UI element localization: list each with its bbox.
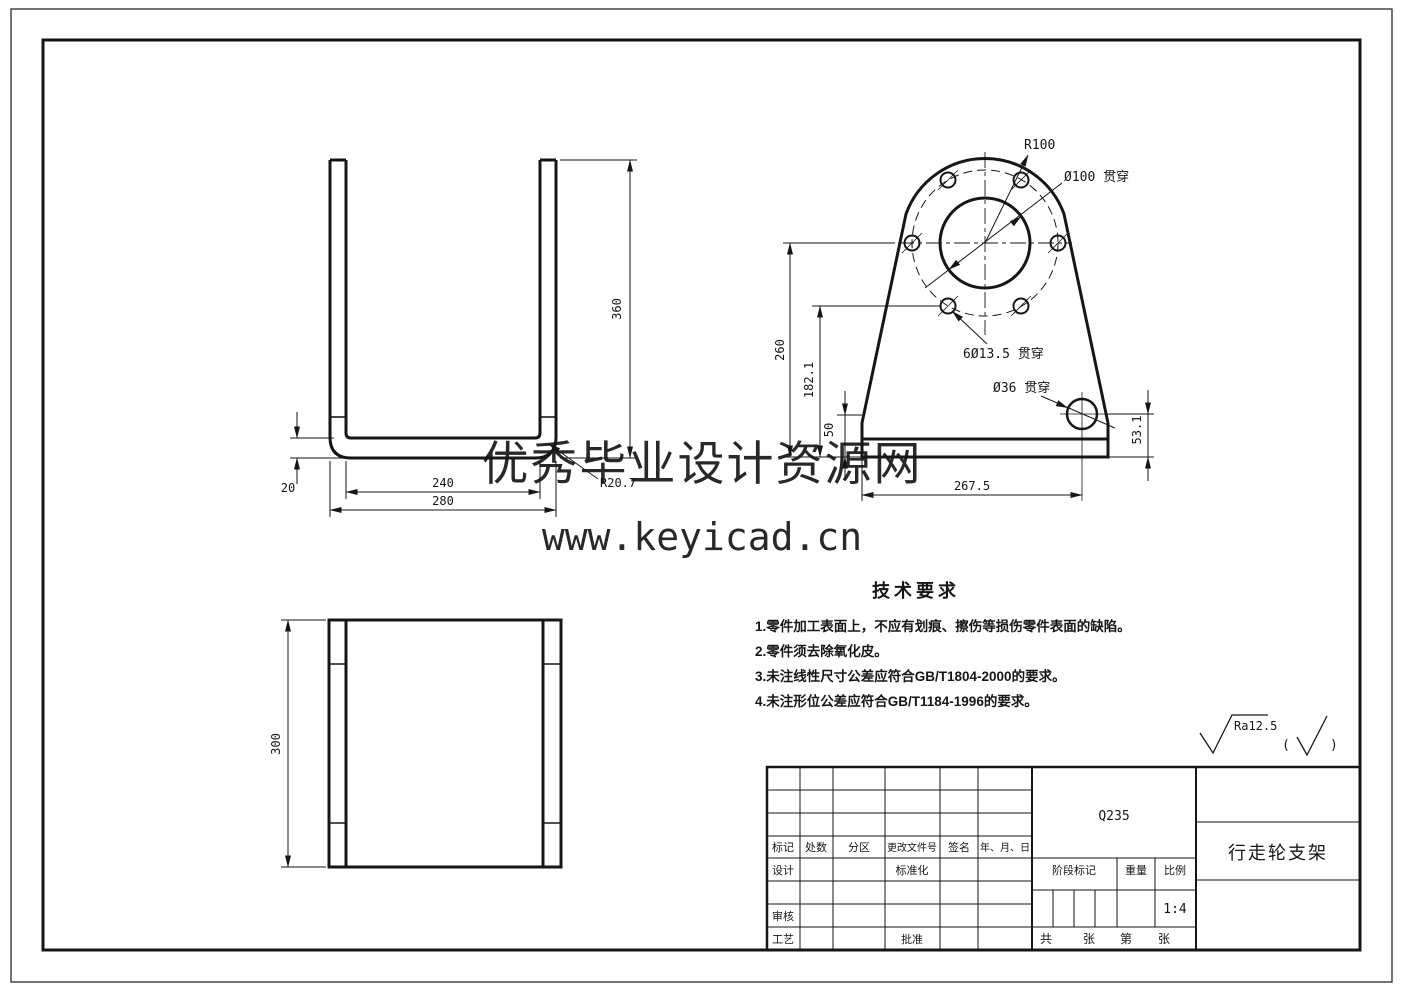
label-bolt-holes: 6Ø13.5 贯穿 — [963, 346, 1044, 362]
sheet-border — [11, 9, 1392, 982]
tech-requirement-item: 1.零件加工表面上，不应有划痕、擦伤等损伤零件表面的缺陷。 — [755, 618, 1131, 634]
tech-requirements-title: 技术要求 — [872, 580, 960, 601]
role-process: 工艺 — [772, 933, 794, 946]
dim-label-240: 240 — [432, 476, 454, 490]
header-zone: 分区 — [848, 841, 870, 854]
dim-label-267-5: 267.5 — [954, 479, 990, 493]
label-r100: R100 — [1024, 138, 1055, 153]
sheet-number-unit: 张 — [1158, 932, 1170, 946]
label-hole-100: Ø100 贯穿 — [1064, 169, 1129, 185]
surface-finish-value: Ra12.5 — [1234, 719, 1277, 733]
scale-label: 比例 — [1164, 863, 1186, 877]
top-view-outline — [329, 620, 561, 867]
watermark: 优秀毕业设计资源网 www.keyicad.cn — [482, 439, 923, 559]
part-name: 行走轮支架 — [1228, 843, 1328, 863]
tech-requirement-item: 4.未注形位公差应符合GB/T1184-1996的要求。 — [755, 693, 1038, 709]
role-approve: 批准 — [901, 932, 923, 946]
watermark-line1: 优秀毕业设计资源网 — [482, 439, 923, 491]
cad-drawing-sheet: 360 20 240 280 R20.7 — [0, 0, 1403, 992]
dim-label-20: 20 — [281, 481, 295, 495]
top-view-dimensions — [281, 620, 326, 867]
tech-requirement-item: 2.零件须去除氧化皮。 — [755, 643, 888, 659]
stage-label: 阶段标记 — [1052, 863, 1096, 877]
role-review: 审核 — [772, 909, 794, 923]
role-standardization: 标准化 — [896, 863, 929, 877]
role-design: 设计 — [772, 864, 794, 877]
sheet-total-label: 共 — [1040, 932, 1052, 946]
front-view-outline — [330, 160, 556, 458]
header-change-doc: 更改文件号 — [887, 841, 937, 854]
header-mark: 标记 — [772, 840, 794, 854]
title-block-text: 标记 处数 分区 更改文件号 签名 年、月、日 设计 标准化 审核 工艺 批准 … — [772, 809, 1328, 946]
header-count: 处数 — [805, 841, 827, 854]
dim-label-280: 280 — [432, 494, 454, 508]
dim-label-360: 360 — [610, 298, 624, 320]
surface-finish-default-symbol — [1297, 716, 1327, 755]
side-view-centerlines — [898, 152, 1072, 335]
drawing-canvas: 360 20 240 280 R20.7 — [0, 0, 1403, 992]
header-date: 年、月、日 — [980, 841, 1030, 854]
sheet-number-label: 第 — [1120, 932, 1132, 946]
surface-finish-paren-close: ) — [1330, 738, 1338, 753]
label-hole-36: Ø36 贯穿 — [993, 380, 1050, 396]
dim-label-300: 300 — [269, 733, 283, 755]
dim-label-182-1: 182.1 — [802, 362, 816, 398]
dim-label-50: 50 — [822, 423, 836, 437]
scale-value: 1:4 — [1163, 902, 1187, 917]
material-value: Q235 — [1098, 809, 1129, 824]
dim-label-260: 260 — [773, 339, 787, 361]
sheet-total-unit: 张 — [1083, 932, 1095, 946]
top-view-bend-ticks — [329, 664, 561, 823]
watermark-line2: www.keyicad.cn — [542, 515, 862, 559]
dim-label-53-1: 53.1 — [1130, 416, 1144, 445]
surface-finish-paren-open: ( — [1282, 738, 1290, 753]
weight-label: 重量 — [1125, 863, 1147, 877]
tech-requirement-item: 3.未注线性尺寸公差应符合GB/T1804-2000的要求。 — [755, 668, 1066, 684]
header-signature: 签名 — [948, 840, 970, 854]
